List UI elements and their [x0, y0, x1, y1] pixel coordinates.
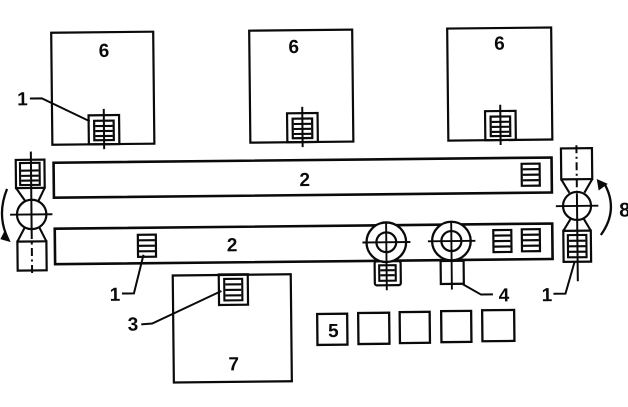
svg-text:1: 1: [110, 285, 121, 306]
svg-text:5: 5: [328, 321, 339, 342]
svg-text:3: 3: [128, 315, 139, 336]
svg-text:1: 1: [17, 89, 28, 110]
svg-text:6: 6: [99, 41, 110, 62]
svg-text:2: 2: [299, 170, 310, 191]
svg-text:6: 6: [288, 37, 299, 58]
svg-text:1: 1: [542, 285, 553, 306]
svg-text:8: 8: [619, 199, 628, 221]
svg-text:2: 2: [227, 235, 238, 256]
svg-text:6: 6: [494, 34, 505, 55]
svg-text:7: 7: [228, 354, 239, 375]
svg-text:4: 4: [499, 285, 510, 306]
